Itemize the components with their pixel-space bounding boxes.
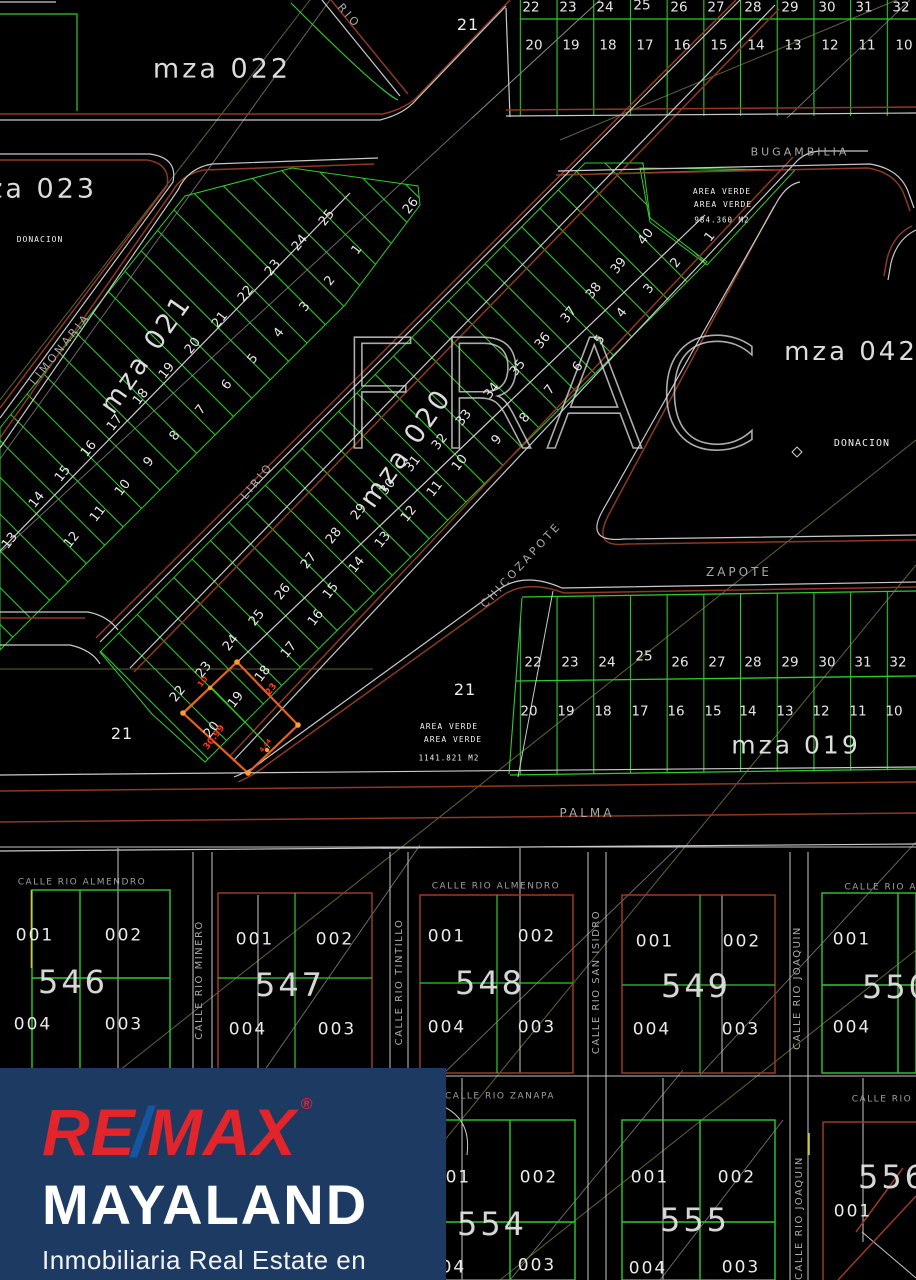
lot-number: 004: [229, 1022, 267, 1039]
lot-number: 003: [722, 1022, 760, 1039]
lot-number: 32: [889, 656, 906, 670]
mayaland-wordmark: MAYALAND: [42, 1172, 446, 1237]
block-number-556: 556: [858, 1161, 916, 1193]
lot-number: 9: [141, 455, 156, 470]
lot-number: 28: [744, 1, 761, 15]
street-label-calle-rio-almendro: CALLE RIO ALMENDRO: [18, 879, 147, 888]
lot-number: 003: [105, 1017, 143, 1034]
remax-mayaland-logo: RE/MAX® MAYALAND Inmobiliaria Real Estat…: [0, 1068, 446, 1280]
lot-number: 4: [271, 326, 286, 341]
lot-number: 26: [671, 656, 688, 670]
street-label-calle-rio-almendro: CALLE RIO ALMENDRO: [432, 883, 561, 892]
registered-trademark-icon: ®: [301, 1096, 314, 1114]
lot-number: 24: [598, 656, 615, 670]
lot-number: 18: [599, 39, 616, 53]
street-label-calle-rio-joaquin: CALLE RIO JOAQUIN: [795, 1156, 805, 1280]
lot-number: 19: [157, 360, 177, 381]
lot-number: 26: [273, 581, 293, 602]
area-verde-size: 984.360 M2: [694, 216, 749, 224]
lot-number: 19: [562, 39, 579, 53]
remax-wordmark: RE/MAX®: [42, 1094, 446, 1170]
lot-number: 26: [670, 1, 687, 15]
street-label-calle-rio-almendro: CALLE RIO AL: [844, 884, 916, 893]
dimension-label: 23: [265, 682, 280, 697]
lot-number: 27: [707, 1, 724, 15]
lot-number: 14: [347, 554, 367, 575]
lot-number: 17: [105, 412, 125, 433]
lot-number: 004: [833, 1020, 871, 1037]
lot-number: 002: [316, 932, 354, 949]
lot-number: 14: [739, 705, 756, 719]
lot-number: 22: [168, 683, 188, 704]
remax-max: MAX: [147, 1094, 297, 1170]
lot-number: 1: [702, 230, 717, 245]
lot-number: 20: [520, 705, 537, 719]
lot-number: 14: [27, 489, 47, 510]
lot-number: 12: [821, 39, 838, 53]
block-number-555: 555: [660, 1204, 730, 1236]
lot-number: 004: [14, 1017, 52, 1034]
lot-number: 13: [784, 39, 801, 53]
street-label-zapote: ZAPOTE: [706, 566, 772, 578]
block-label-mza-023: mza 023: [0, 176, 97, 203]
lot-number: 25: [635, 650, 652, 664]
street-label-calle-rio-minero: CALLE RIO MINERO: [195, 920, 205, 1040]
lot-number: 004: [428, 1020, 466, 1037]
lot-number: 15: [321, 580, 341, 601]
block-number-550: 550: [862, 971, 916, 1003]
lot-number: 6: [219, 378, 234, 393]
lot-number: 28: [324, 525, 344, 546]
lot-number: 38: [584, 280, 604, 301]
lot-number: 10: [885, 705, 902, 719]
street-label-palma: PALMA: [560, 807, 615, 819]
lot-number: 13: [776, 705, 793, 719]
lot-number: 12: [62, 529, 82, 550]
lot-number: 12: [812, 705, 829, 719]
lot-number: 17: [279, 639, 299, 660]
lot-number: 14: [747, 39, 764, 53]
lot-number: 8: [167, 429, 182, 444]
lot-number: 004: [629, 1261, 667, 1278]
street-label-rio: RIO: [335, 2, 362, 31]
lot-number: 15: [53, 463, 73, 484]
lot-number: 3: [641, 282, 656, 297]
lot-number: 23: [263, 257, 283, 278]
street-label-bugambilia: BUGAMBILIA: [751, 147, 850, 158]
cadastral-map-screenshot: mza 022mza 023mza 042mza 019mza 021mza 0…: [0, 0, 916, 1280]
block-label-mza-022: mza 022: [153, 56, 291, 83]
lot-number: 24: [596, 1, 613, 15]
lot-number: 22: [522, 1, 539, 15]
dimension-label: 4.44: [259, 738, 273, 753]
lot-number: 001: [236, 932, 274, 949]
lot-number: 2: [668, 256, 683, 271]
street-label-calle-rio-tintillo: CALLE RIO TINTILLO: [395, 919, 405, 1046]
remax-re: RE: [42, 1094, 136, 1170]
lot-number: 23: [561, 656, 578, 670]
lot-number: 23: [559, 1, 576, 15]
lot-number: 3: [297, 300, 312, 315]
area-verde-label: AREA VERDE: [424, 736, 482, 744]
remax-slash: /: [132, 1092, 151, 1172]
block-label-mza-042: mza 042: [784, 339, 916, 365]
lot-number: 002: [518, 929, 556, 946]
lot-number: 002: [718, 1170, 756, 1187]
block-number-546: 546: [38, 966, 108, 998]
lot-number: 40: [636, 226, 656, 247]
lot-number: 5: [245, 352, 260, 367]
lot-number: 2: [322, 274, 337, 289]
lot-number: 29: [781, 1, 798, 15]
lot-number: 12: [399, 503, 419, 524]
logo-tagline: Inmobiliaria Real Estate en Tulum: [42, 1245, 446, 1280]
lot-number: 16: [79, 438, 99, 459]
lot-number: 15: [704, 705, 721, 719]
lot-number: 002: [520, 1170, 558, 1187]
lot-number: 13: [373, 529, 393, 550]
lot-number: 001: [636, 934, 674, 951]
lot-number: 30: [818, 1, 835, 15]
lot-number: 31: [855, 1, 872, 15]
lot-number: 26: [401, 195, 421, 216]
lot-number: 003: [722, 1260, 760, 1277]
lot-number: 19: [226, 689, 246, 710]
lot-number: 002: [723, 934, 761, 951]
area-verde-label: AREA VERDE: [693, 188, 751, 196]
lot-number: 001: [834, 1204, 872, 1221]
lot-number: 25: [633, 0, 650, 13]
lot-number: 22: [524, 656, 541, 670]
lot-number: 7: [193, 403, 208, 418]
street-label-calle-rio-san-isidro: CALLE RIO SAN ISIDRO: [592, 910, 602, 1054]
lot-number: 31: [854, 656, 871, 670]
block-number-548: 548: [455, 967, 525, 999]
lot-number: 22: [236, 283, 256, 304]
lot-number: 30: [818, 656, 835, 670]
street-label-lirio: LIRIO: [239, 460, 275, 501]
lot-number: 001: [16, 928, 54, 945]
lot-number: 27: [299, 550, 319, 571]
block-number-549: 549: [661, 970, 731, 1002]
lot-number: 24: [221, 632, 241, 653]
lot-number: 17: [636, 39, 653, 53]
lot-number: 13: [0, 530, 20, 551]
street-label-calle-rio-joaquin: CALLE RIO JOAQUIN: [793, 926, 803, 1050]
lot-number: 003: [318, 1022, 356, 1039]
area-verde-size: 1141.821 M2: [419, 754, 480, 762]
street-label-limonaria: LIMONARIA: [28, 311, 92, 387]
lot-number: 25: [317, 207, 337, 228]
street-label-calle-rio-zanapa: CALLE RIO Z: [852, 1096, 916, 1105]
lot-number: 001: [833, 932, 871, 949]
lot-number: 28: [744, 656, 761, 670]
block-number-554: 554: [457, 1208, 527, 1240]
area-verde-label: AREA VERDE: [420, 723, 478, 731]
lot-number: 002: [105, 928, 143, 945]
street-label-calle-rio-zanapa: CALLE RIO ZANAPA: [445, 1093, 555, 1102]
lot-number: 29: [781, 656, 798, 670]
block-label-mza-019: mza 019: [731, 733, 860, 758]
lot-number: 20: [525, 39, 542, 53]
lot-number: 001: [428, 929, 466, 946]
lot-number: 003: [518, 1020, 556, 1037]
block-number-547: 547: [255, 969, 325, 1001]
area-verde-label: AREA VERDE: [694, 201, 752, 209]
lot-number: 10: [895, 39, 912, 53]
lot-number: 16: [667, 705, 684, 719]
lot-number: 39: [609, 255, 629, 276]
lot-number: 32: [892, 1, 909, 15]
lot-number: 001: [631, 1170, 669, 1187]
lot-number: 16: [306, 607, 326, 628]
lot-number: 10: [113, 477, 133, 498]
lot-number: 004: [633, 1022, 671, 1039]
lot-number: 17: [631, 705, 648, 719]
lot-number: 24: [290, 232, 310, 253]
lot-number: 15: [710, 39, 727, 53]
lot-number: 11: [88, 503, 108, 524]
lot-number: 21: [111, 726, 133, 742]
lot-number: 25: [247, 607, 267, 628]
lot-number: 16: [673, 39, 690, 53]
lot-number: 27: [708, 656, 725, 670]
lot-number: 21: [210, 309, 230, 330]
street-label-chicozapote: CHICOZAPOTE: [479, 520, 564, 610]
lot-number: 18: [594, 705, 611, 719]
lot-number: 11: [849, 705, 866, 719]
lot-number: 1: [349, 243, 364, 258]
donacion-label: DONACION: [834, 439, 890, 449]
lot-number: 19: [557, 705, 574, 719]
lot-number: 21: [457, 17, 479, 33]
lot-number: 20: [183, 335, 203, 356]
lot-number: 21: [454, 682, 476, 698]
lot-number: 11: [858, 39, 875, 53]
donacion-label: DONACION: [17, 236, 64, 244]
lot-number: 003: [518, 1258, 556, 1275]
